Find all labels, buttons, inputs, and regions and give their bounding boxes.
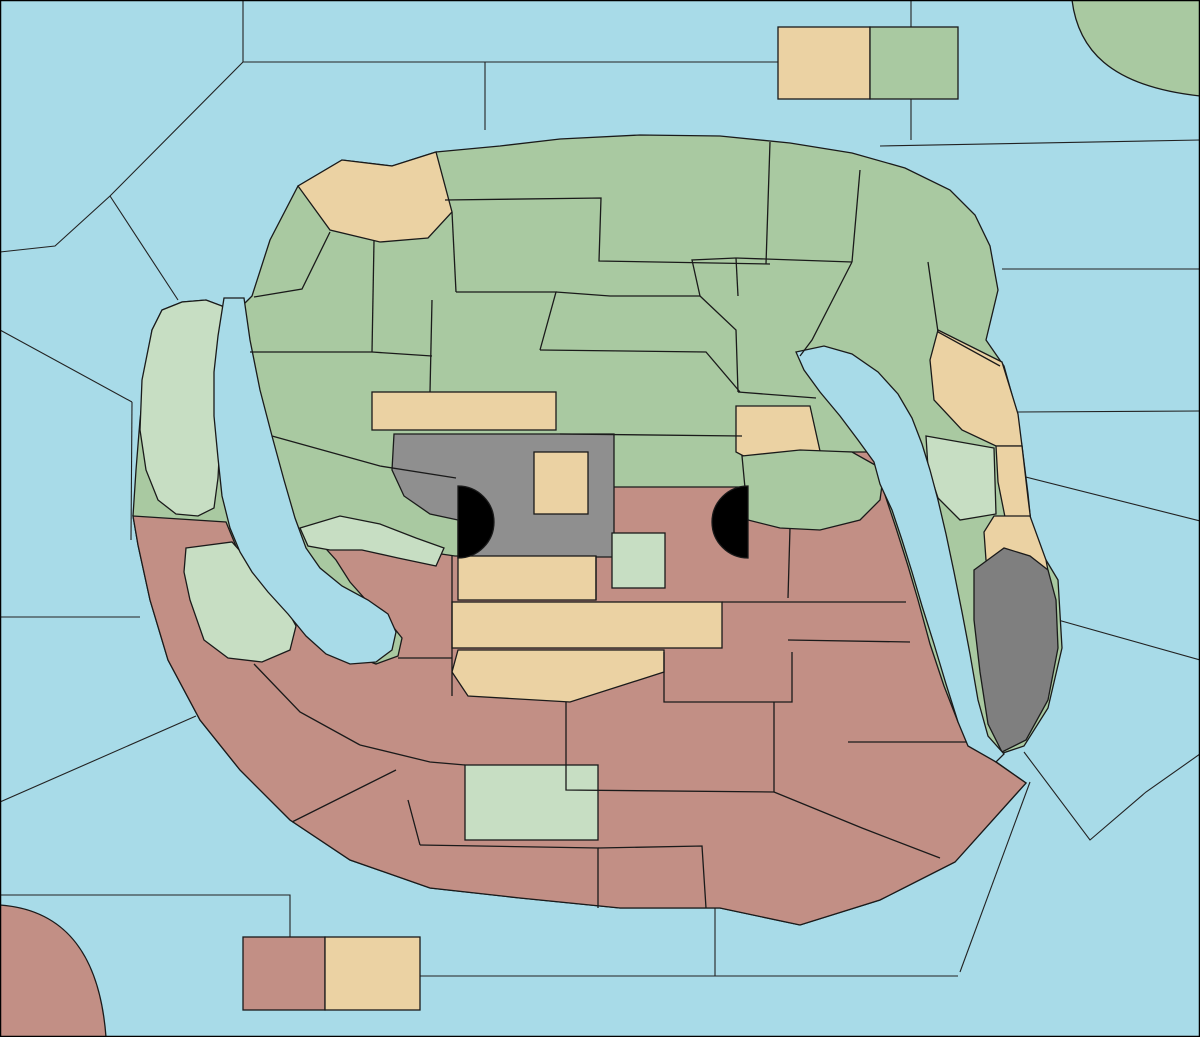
game-map	[0, 0, 1200, 1037]
territory-abaun[interactable]	[243, 937, 325, 1010]
territory-hills[interactable]	[458, 556, 596, 600]
territory-rotheim[interactable]	[465, 765, 598, 840]
territory-land-der-wiesel[interactable]	[372, 392, 556, 430]
territory-helom[interactable]	[870, 27, 958, 99]
territory-urur[interactable]	[452, 602, 722, 648]
territory-skr[interactable]	[534, 452, 588, 514]
game-map-stage	[0, 0, 1200, 1037]
territory-mellar[interactable]	[742, 450, 884, 530]
territory-elfland[interactable]	[778, 27, 870, 99]
territory-eun[interactable]	[612, 533, 665, 588]
territory-ornheim[interactable]	[325, 937, 420, 1010]
